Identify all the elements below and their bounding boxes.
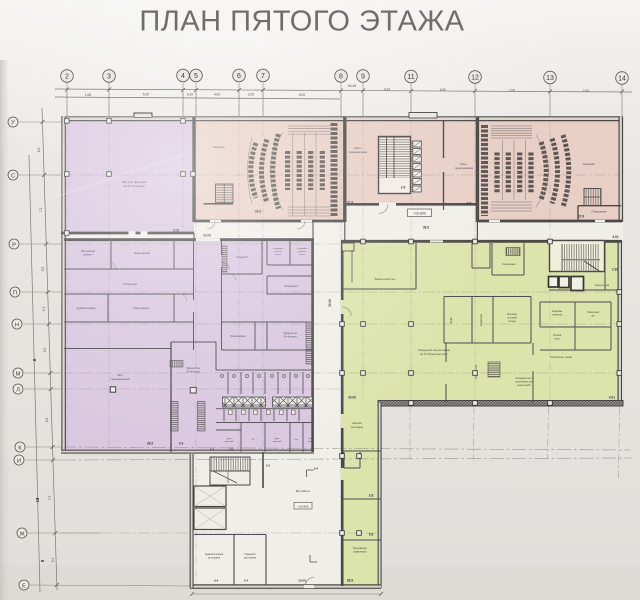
svg-text:6.50: 6.50 [440, 88, 446, 92]
svg-text:2.00: 2.00 [248, 93, 254, 97]
svg-text:2: 2 [65, 74, 69, 81]
svg-text:6: 6 [237, 73, 241, 80]
svg-text:4.00: 4.00 [214, 93, 220, 97]
svg-text:1.08: 1.08 [85, 93, 91, 97]
svg-text:13: 13 [546, 75, 554, 82]
svg-text:6.0: 6.0 [37, 148, 41, 153]
svg-text:5.0: 5.0 [43, 348, 47, 353]
svg-text:6.20: 6.20 [187, 93, 193, 97]
svg-text:Н: Н [15, 323, 19, 329]
svg-text:П: П [13, 291, 17, 297]
svg-text:У: У [11, 120, 15, 126]
svg-text:6.0: 6.0 [45, 418, 49, 423]
svg-text:7.00: 7.00 [583, 89, 589, 93]
svg-text:11: 11 [407, 74, 414, 81]
svg-text:3: 3 [107, 74, 111, 81]
svg-text:7.2: 7.2 [39, 208, 43, 213]
svg-text:5.0: 5.0 [41, 267, 45, 272]
svg-text:ПЛАН ПЯТОГО ЭТАЖА: ПЛАН ПЯТОГО ЭТАЖА [139, 6, 464, 38]
svg-text:5: 5 [194, 73, 198, 80]
svg-text:5.00: 5.00 [299, 93, 305, 97]
svg-text:И: И [17, 459, 21, 465]
svg-text:М: М [16, 372, 21, 378]
svg-text:5.20: 5.20 [143, 93, 149, 97]
svg-text:5.4: 5.4 [51, 558, 55, 563]
svg-text:9: 9 [361, 74, 365, 81]
svg-text:7.5: 7.5 [48, 496, 52, 501]
svg-text:Л: Л [16, 388, 20, 394]
svg-text:Р: Р [12, 243, 16, 249]
svg-text:7: 7 [261, 73, 265, 80]
svg-text:54.48: 54.48 [348, 84, 356, 88]
svg-text:Ж: Ж [19, 532, 25, 538]
svg-text:4: 4 [181, 73, 185, 80]
svg-text:18: 18 [35, 497, 40, 502]
svg-text:14: 14 [618, 76, 626, 83]
svg-text:Е: Е [22, 584, 26, 590]
svg-text:12: 12 [471, 75, 479, 82]
svg-text:3.3: 3.3 [42, 307, 46, 312]
svg-text:7.00: 7.00 [509, 89, 515, 93]
svg-text:С: С [11, 174, 15, 180]
svg-text:4.20: 4.20 [384, 88, 390, 92]
svg-text:8: 8 [339, 74, 343, 81]
